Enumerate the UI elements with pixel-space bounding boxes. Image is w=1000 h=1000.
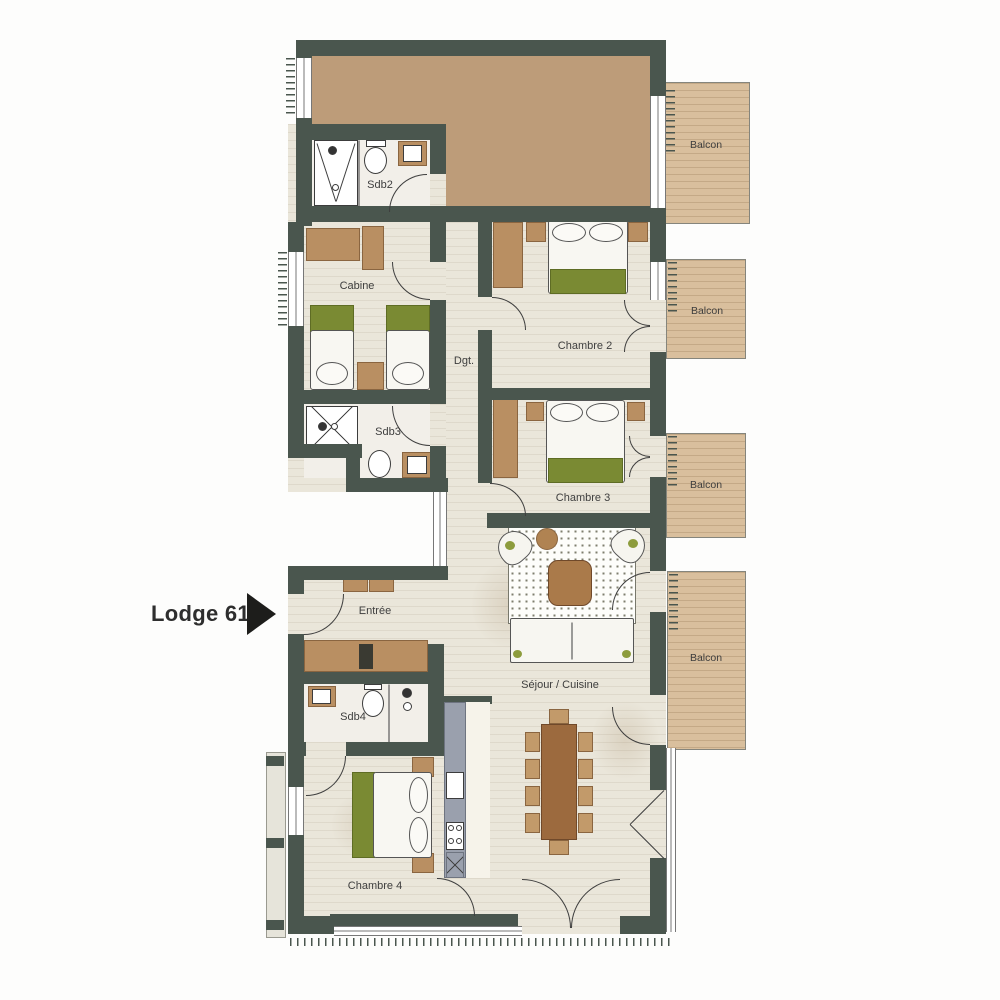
window-balcony1	[650, 96, 666, 208]
wall-ch2-ch3	[492, 388, 666, 400]
shower-head-icon	[402, 688, 412, 698]
burner	[448, 825, 454, 831]
wall-right	[650, 352, 666, 436]
kitchen-island	[466, 702, 490, 878]
wall-right	[650, 40, 666, 96]
pillow	[586, 403, 619, 422]
dishwasher	[446, 852, 464, 878]
bottom-hatch	[290, 938, 670, 946]
nightstand	[526, 222, 546, 242]
balcony-1	[664, 82, 750, 224]
washbasin-bowl	[403, 145, 422, 162]
toilet-sdb3	[368, 450, 391, 478]
side-table-round	[536, 528, 558, 550]
dining-table	[541, 724, 577, 840]
shower-knob	[403, 702, 412, 711]
wall-corridor-left	[430, 300, 446, 390]
window-upper-left	[296, 58, 312, 118]
pillow	[409, 817, 428, 853]
wall-corner-pier	[650, 884, 666, 934]
ledge-post	[266, 838, 284, 848]
room-label-chambre4: Chambre 4	[348, 880, 402, 892]
wall-entree-top	[288, 566, 448, 580]
washbasin-bowl	[312, 689, 331, 704]
room-label-sejour: Séjour / Cuisine	[521, 679, 599, 691]
wall-cabine-bottom	[288, 390, 446, 404]
wall-sdb2-top	[296, 124, 446, 140]
window-cabine	[288, 252, 304, 326]
wall-right	[650, 208, 666, 262]
balcony-3-hatch	[668, 436, 677, 490]
room-label-sdb4: Sdb4	[340, 711, 366, 723]
window-hatch	[278, 252, 287, 326]
nightstand-cabine	[357, 362, 384, 390]
nightstand	[526, 402, 544, 421]
wall-right	[650, 477, 666, 571]
pillow	[392, 362, 424, 385]
balcony-label-4: Balcon	[690, 652, 722, 664]
dining-chair	[525, 786, 540, 806]
window-chambre4-left	[288, 787, 304, 835]
room-label-chambre2: Chambre 2	[558, 340, 612, 352]
pillow	[409, 777, 428, 813]
ledge-post	[266, 756, 284, 766]
dining-chair	[525, 732, 540, 752]
dining-chair	[525, 759, 540, 779]
window-balcony2	[650, 262, 666, 300]
armchair-cushion	[628, 539, 638, 548]
single-bed-blanket	[386, 305, 430, 332]
wall-sdb4-top	[304, 672, 444, 684]
balcony-1-hatch	[666, 90, 675, 152]
wall-top	[296, 40, 666, 56]
sdb2-partition	[359, 141, 360, 207]
nightstand	[627, 402, 645, 421]
balcony-label-1: Balcon	[690, 139, 722, 151]
wardrobe-chambre2	[493, 222, 523, 288]
window-outer-right	[666, 748, 676, 932]
room-label-chambre3: Chambre 3	[556, 492, 610, 504]
window-bottom	[334, 926, 522, 936]
wall-right	[650, 745, 666, 790]
wall-corridor-right	[478, 330, 492, 483]
room-label-sdb2: Sdb2	[367, 179, 393, 191]
pillow	[589, 223, 623, 242]
wall-sdb4-right	[428, 644, 444, 756]
toilet-tank-sdb2	[366, 140, 386, 147]
wall-upper-left	[296, 40, 312, 58]
coffee-table	[548, 560, 592, 606]
dining-chair	[549, 709, 569, 724]
room-label-sdb3: Sdb3	[375, 426, 401, 438]
room-label-cabine: Cabine	[340, 280, 375, 292]
shower-drain	[332, 184, 339, 191]
wall-sdb4-bottom	[288, 742, 306, 756]
lodge-arrow-icon	[247, 593, 276, 635]
shower-head-icon	[328, 146, 337, 155]
washbasin-bowl	[407, 456, 427, 474]
burner	[456, 838, 462, 844]
shower-partition	[389, 685, 390, 743]
bed-blanket	[352, 772, 375, 858]
adjacent-area-right	[446, 56, 650, 206]
shower-head-icon	[318, 422, 327, 431]
wall-corridor-left	[430, 446, 446, 492]
wall-left-lower	[288, 634, 304, 787]
room-label-entree: Entrée	[359, 605, 391, 617]
wardrobe-chambre3	[493, 398, 518, 478]
pillow	[316, 362, 348, 385]
closet-handle	[359, 644, 373, 669]
balcony-label-3: Balcon	[690, 479, 722, 491]
window-notch	[433, 492, 447, 568]
room-label-dgt: Dgt.	[454, 355, 474, 367]
burner	[456, 825, 462, 831]
wall-left	[288, 222, 304, 252]
shower-knob	[331, 423, 338, 430]
wardrobe-cabine	[362, 226, 384, 270]
wardrobe-cabine	[306, 228, 360, 261]
dining-chair	[578, 813, 593, 833]
dining-chair	[525, 813, 540, 833]
lodge-title: Lodge 61	[151, 601, 250, 627]
bed-blanket	[548, 458, 623, 483]
wall-bottom-left-corner	[288, 916, 334, 934]
wall-right	[650, 858, 666, 884]
sofa-cushion-line	[572, 623, 573, 660]
wall-right	[650, 612, 666, 695]
armchair-cushion	[505, 541, 515, 550]
window-sill-bench	[330, 914, 518, 926]
wall-left-lower	[288, 580, 304, 594]
sofa-pillow	[513, 650, 522, 658]
burner	[448, 838, 454, 844]
wall-corridor-left	[430, 124, 446, 174]
balcony-label-2: Balcon	[691, 305, 723, 317]
dining-chair	[578, 786, 593, 806]
dining-chair	[578, 759, 593, 779]
pillow	[550, 403, 583, 422]
dining-chair	[578, 732, 593, 752]
balcony-4-hatch	[669, 574, 678, 630]
toilet-sdb2	[364, 147, 387, 174]
balcony-2-hatch	[668, 262, 677, 316]
kitchen-sink	[446, 772, 464, 799]
bed-blanket	[550, 269, 626, 294]
wall-sdb4-bottom	[346, 742, 428, 756]
window-hatch	[286, 58, 295, 118]
floor-plan-canvas: Sdb2 Cabine Dgt. Chambre 2 Sdb3 Chambre …	[0, 0, 1000, 1000]
ledge-post	[266, 920, 284, 930]
dining-chair	[549, 840, 569, 855]
pillow	[552, 223, 586, 242]
wall-corridor-right	[478, 220, 492, 297]
single-bed-blanket	[310, 305, 354, 332]
nightstand	[628, 222, 648, 242]
sofa-pillow	[622, 650, 631, 658]
wall-corridor-left	[430, 222, 446, 262]
